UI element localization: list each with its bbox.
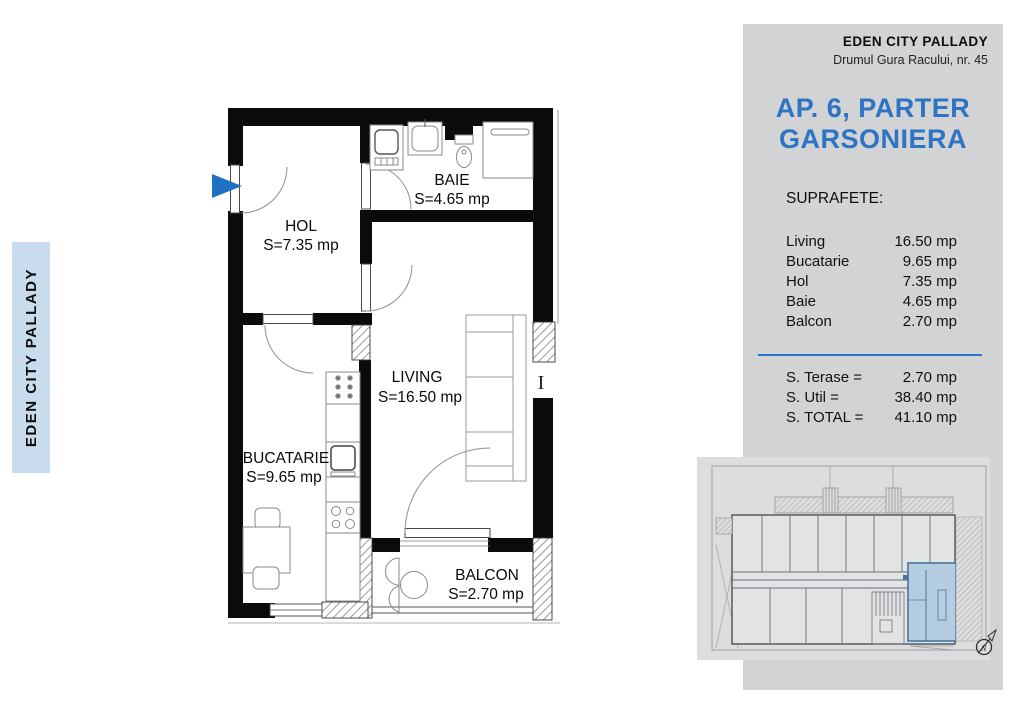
hol-area: S=7.35 mp — [263, 237, 338, 254]
compass-label: N — [980, 644, 987, 653]
living-label: LIVING — [392, 369, 443, 386]
bathroom-door-leaf — [362, 163, 371, 209]
toilet-icon — [455, 135, 473, 144]
section-marker: I — [538, 372, 545, 394]
balcony-chair-icon — [389, 586, 399, 612]
chair-icon — [253, 567, 279, 589]
balcony-table-icon — [401, 572, 428, 599]
kitchen-table-set — [243, 508, 290, 589]
kitchen-fixtures — [326, 372, 360, 601]
kitchen-door-leaf — [263, 315, 313, 324]
chair-icon — [255, 508, 280, 529]
floorplan-svg: I HOL S=7.35 mp BAIE S=4.65 mp LIVING S=… — [0, 0, 1018, 720]
balcon-label: BALCON — [455, 567, 519, 584]
stove-icon — [326, 502, 360, 533]
baie-label: BAIE — [434, 172, 469, 189]
highlighted-apartment — [903, 563, 956, 641]
balcony-band — [775, 497, 953, 513]
balcony-door-leaf — [405, 529, 490, 538]
balcony-chair-icon — [386, 558, 400, 585]
baie-area: S=4.65 mp — [414, 191, 489, 208]
kitchen-counter — [326, 372, 360, 601]
living-area: S=16.50 mp — [378, 389, 462, 406]
side-hatch — [956, 517, 982, 641]
fridge-icon — [326, 372, 360, 404]
sofa-icon — [466, 315, 526, 481]
living-door-leaf — [362, 264, 371, 311]
table-icon — [243, 527, 290, 573]
balcon-area: S=2.70 mp — [448, 586, 523, 603]
entrance-canopy — [716, 518, 732, 534]
bucatarie-label: BUCATARIE — [243, 450, 329, 467]
mini-siteplan: N — [697, 457, 996, 660]
apartment-plan: I HOL S=7.35 mp BAIE S=4.65 mp LIVING S=… — [212, 108, 560, 623]
bucatarie-area: S=9.65 mp — [246, 469, 321, 486]
balcony-furniture — [386, 558, 428, 612]
hol-label: HOL — [285, 218, 317, 235]
